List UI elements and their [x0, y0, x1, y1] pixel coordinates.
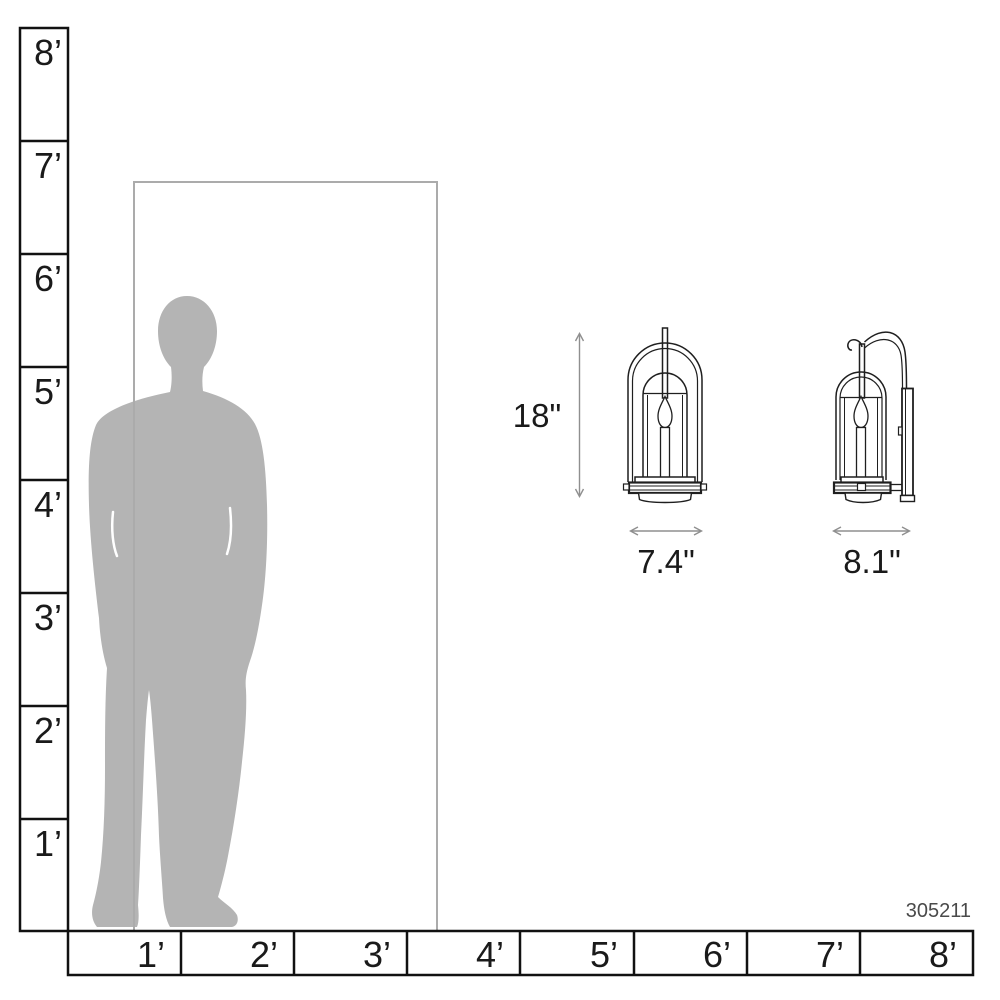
product-number: 305211 — [906, 900, 971, 922]
height-dimension-label: 18" — [513, 397, 561, 434]
dimension-diagram: 8’ 7’ 6’ 5’ 4’ 3’ 2’ 1’ 1’ 2’ 3’ 4’ 5’ 6… — [0, 0, 1000, 1000]
horizontal-ruler-label-4ft: 4’ — [476, 934, 504, 975]
horizontal-ruler-label-5ft: 5’ — [590, 934, 618, 975]
side-candle-body — [857, 428, 866, 479]
vertical-ruler-label-2ft: 2’ — [34, 710, 62, 751]
vertical-ruler-label-8ft: 8’ — [34, 32, 62, 73]
front-base-band — [629, 483, 701, 494]
depth-dimension: 8.1" — [834, 527, 910, 580]
side-base-cup — [845, 493, 882, 503]
front-base-tab-left — [624, 484, 630, 490]
side-mount-arm-inner — [865, 340, 903, 389]
front-hanger-stem — [663, 328, 668, 398]
front-flame-bulb — [658, 397, 672, 428]
front-candle-body — [661, 428, 670, 479]
front-base-tab-right — [701, 484, 707, 490]
horizontal-ruler: 1’ 2’ 3’ 4’ 5’ 6’ 7’ 8’ — [68, 931, 973, 975]
vertical-ruler: 8’ 7’ 6’ 5’ 4’ 3’ 2’ 1’ — [20, 28, 68, 931]
vertical-ruler-label-7ft: 7’ — [34, 145, 62, 186]
horizontal-ruler-label-7ft: 7’ — [816, 934, 844, 975]
width-dimension-label: 7.4" — [637, 543, 695, 580]
sconce-side-view — [834, 332, 915, 502]
side-plate-foot — [901, 496, 915, 502]
horizontal-ruler-label-1ft: 1’ — [137, 934, 165, 975]
side-mount-arm-outer — [865, 332, 907, 389]
side-flame-bulb — [854, 397, 868, 428]
horizontal-ruler-label-2ft: 2’ — [250, 934, 278, 975]
side-wall-plate — [902, 389, 913, 496]
horizontal-ruler-label-6ft: 6’ — [703, 934, 731, 975]
vertical-ruler-label-6ft: 6’ — [34, 258, 62, 299]
horizontal-ruler-label-3ft: 3’ — [363, 934, 391, 975]
vertical-ruler-label-4ft: 4’ — [34, 484, 62, 525]
depth-dimension-label: 8.1" — [843, 543, 901, 580]
width-dimension: 7.4" — [631, 527, 702, 580]
side-plate-knob — [899, 427, 903, 435]
vertical-ruler-label-1ft: 1’ — [34, 823, 62, 864]
side-stem-clamp — [858, 484, 866, 491]
horizontal-ruler-label-8ft: 8’ — [929, 934, 957, 975]
diagram-svg: 8’ 7’ 6’ 5’ 4’ 3’ 2’ 1’ 1’ 2’ 3’ 4’ 5’ 6… — [0, 0, 1000, 1000]
person-body — [89, 296, 268, 927]
vertical-ruler-label-5ft: 5’ — [34, 371, 62, 412]
sconce-front-view — [624, 328, 707, 503]
side-hanger-stem — [860, 344, 865, 398]
vertical-ruler-label-3ft: 3’ — [34, 597, 62, 638]
front-base-cup — [639, 493, 692, 503]
person-silhouette — [89, 296, 268, 927]
height-dimension: 18" — [513, 334, 584, 497]
